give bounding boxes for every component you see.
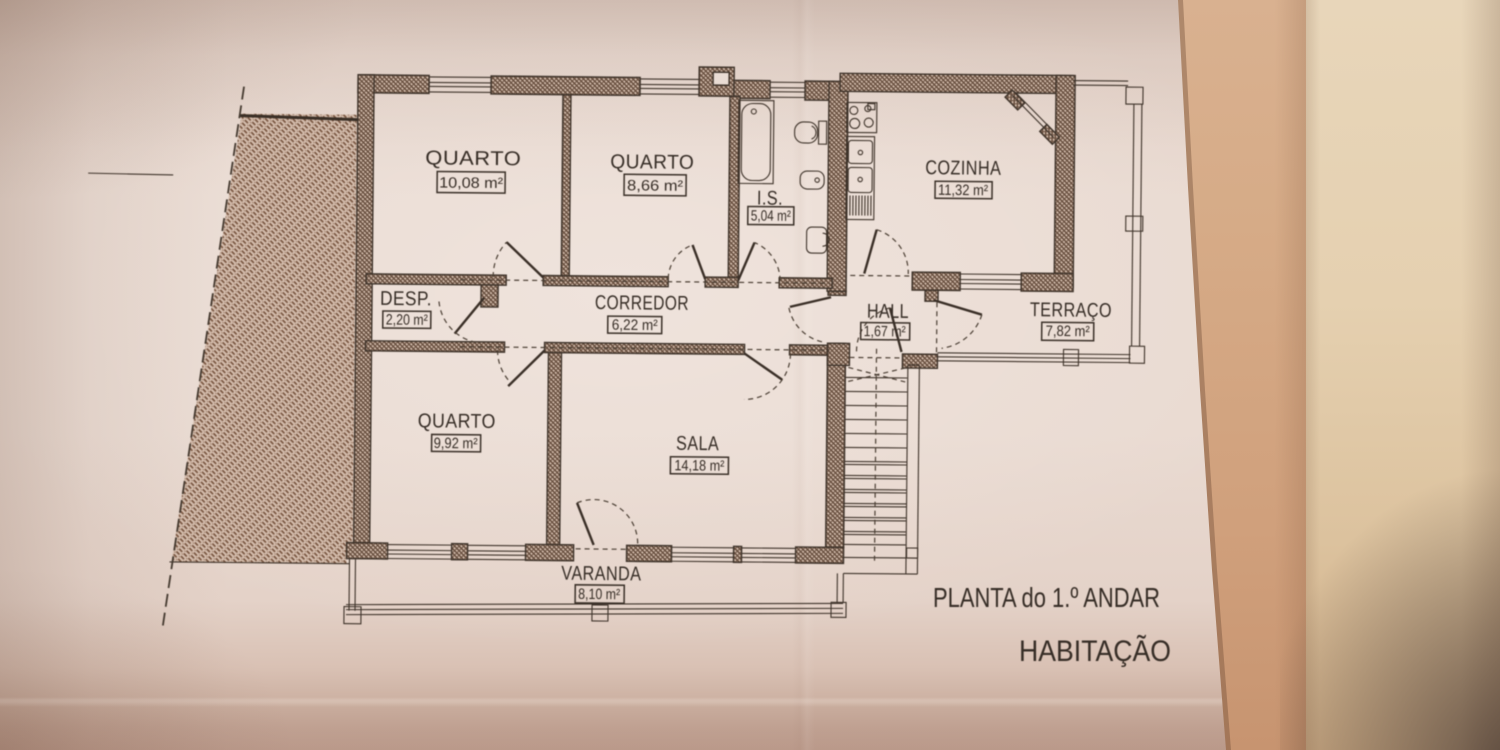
svg-text:14,18 m²: 14,18 m² [674, 457, 724, 474]
svg-text:5,04 m²: 5,04 m² [751, 207, 791, 224]
svg-text:2,20 m²: 2,20 m² [386, 311, 428, 328]
svg-text:COZINHA: COZINHA [925, 157, 1001, 180]
svg-text:8,66 m²: 8,66 m² [627, 177, 683, 195]
svg-text:PLANTA do 1.º ANDAR: PLANTA do 1.º ANDAR [933, 582, 1160, 613]
svg-text:CORREDOR: CORREDOR [595, 292, 689, 315]
svg-text:VARANDA: VARANDA [561, 563, 641, 586]
svg-text:1,67 m²: 1,67 m² [864, 323, 906, 340]
svg-text:HALL: HALL [867, 301, 909, 323]
svg-text:8,10 m²: 8,10 m² [578, 586, 620, 603]
svg-text:TERRAÇO: TERRAÇO [1030, 299, 1112, 322]
svg-text:QUARTO: QUARTO [418, 410, 496, 433]
svg-text:QUARTO: QUARTO [610, 151, 694, 174]
svg-text:6,22 m²: 6,22 m² [612, 317, 658, 334]
svg-text:11,32 m²: 11,32 m² [938, 182, 988, 199]
svg-text:SALA: SALA [676, 433, 719, 455]
svg-text:9,92 m²: 9,92 m² [434, 435, 478, 452]
svg-text:QUARTO: QUARTO [425, 147, 521, 170]
svg-text:HABITAÇÃO: HABITAÇÃO [1019, 634, 1171, 668]
svg-text:10,08 m²: 10,08 m² [439, 174, 503, 192]
svg-text:7,82 m²: 7,82 m² [1046, 323, 1090, 340]
svg-text:DESP.: DESP. [380, 288, 432, 310]
